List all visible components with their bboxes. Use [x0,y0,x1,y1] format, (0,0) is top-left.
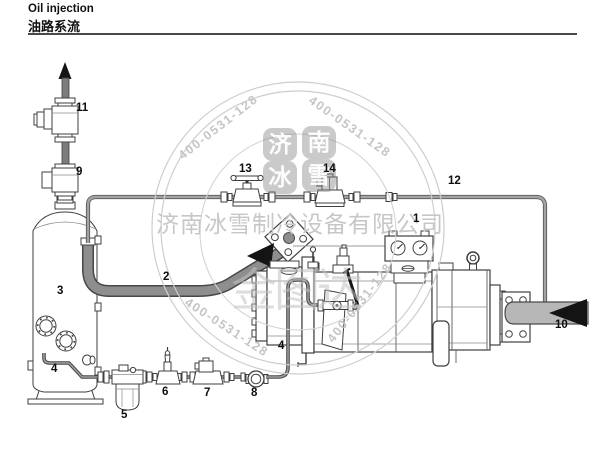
piping-diagram [0,0,600,450]
part-label-4b: 4 [278,340,284,352]
part-label-1: 1 [413,213,419,225]
part-label-10: 10 [555,319,568,331]
part-label-3: 3 [57,285,63,297]
solenoid-valve-14 [304,174,397,207]
part-label-11: 11 [76,102,88,114]
vent-assembly [34,62,78,200]
part-label-4a: 4 [51,363,57,375]
oil-injection-diagram-page: Oil injection 油路系流 [0,0,600,450]
relief-valve-11 [34,106,78,134]
solenoid-valve-7 [193,358,223,384]
part-label-14: 14 [323,163,336,175]
tank-sight-flange-upper [36,316,56,336]
part-label-6: 6 [162,386,168,398]
part-label-9: 9 [76,166,82,178]
hand-valve-13 [221,175,275,206]
slanted-cover-plate [322,290,346,350]
tank-sight-flange-lower [56,331,76,351]
valve-9 [42,168,78,192]
sight-glass-8 [246,371,268,387]
eye-bolt-icon [467,252,479,270]
part-label-12: 12 [448,175,461,187]
needle-valve-6 [156,347,180,384]
part-label-2: 2 [163,271,169,283]
part-label-13: 13 [239,163,252,175]
flow-arrow-vent-icon [59,62,72,79]
mounting-foot [433,321,449,366]
part-label-5: 5 [121,409,127,421]
oil-filter [112,365,143,410]
part-label-8: 8 [251,387,257,399]
part-label-7: 7 [204,387,210,399]
oil-separator-tank [28,196,103,404]
